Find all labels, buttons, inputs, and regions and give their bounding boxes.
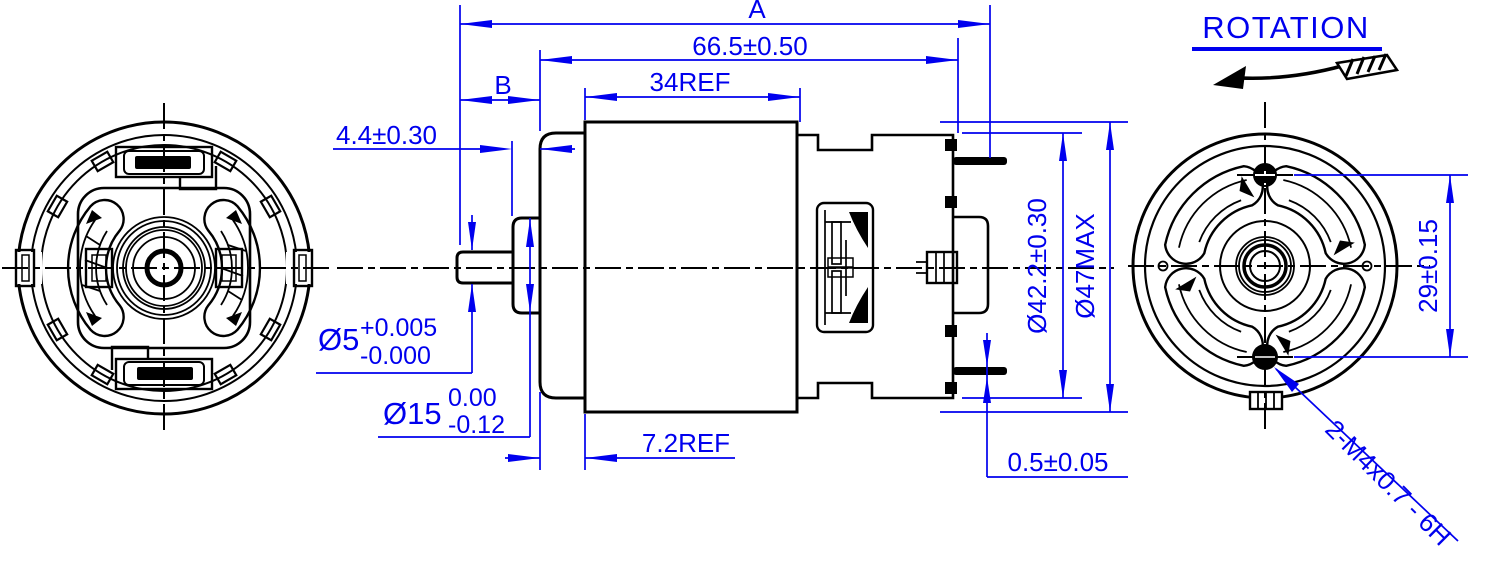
terminal-bottom	[953, 367, 1007, 375]
label-endcap-length: 7.2REF	[642, 428, 730, 458]
motor-engineering-drawing: A 66.5±0.50 B 34REF 4.4±0.30 Ø5 +0.005	[0, 0, 1490, 568]
leader-mounting-thread: 2-M4x0.7 - 6H	[1274, 367, 1458, 551]
label-body-dia: Ø47MAX	[1070, 213, 1100, 319]
label-mounting-thread: 2-M4x0.7 - 6H	[1320, 414, 1458, 552]
label-shaft-extension: B	[494, 70, 511, 100]
dim-hole-spacing: 29±0.15	[1413, 175, 1454, 357]
dim-overall-length-A: A	[460, 0, 990, 28]
label-overall-length: A	[748, 0, 766, 24]
side-view	[337, 122, 1114, 412]
dim-shaft-extension-B: B	[460, 70, 540, 104]
rear-view	[1128, 102, 1430, 430]
dim-case-length: 66.5±0.50	[540, 31, 958, 64]
label-boss-dia-lower: -0.12	[448, 411, 505, 439]
dim-shaft-diameter: Ø5 +0.005 -0.000	[316, 215, 476, 373]
label-endcap-dia: Ø42.2±0.30	[1022, 198, 1052, 334]
label-terminal-thickness: 0.5±0.05	[1007, 447, 1108, 477]
dim-endcap-diameter: Ø42.2±0.30	[1022, 133, 1067, 398]
endcap-outline	[540, 133, 585, 398]
rear-housing-outline	[797, 135, 953, 398]
label-boss-dia-upper: 0.00	[448, 384, 497, 412]
label-shaft-dia-upper: +0.005	[360, 314, 437, 342]
label-boss-height: 4.4±0.30	[336, 120, 437, 150]
front-view	[2, 103, 333, 433]
label-shaft-dia-lower: -0.000	[360, 342, 431, 370]
label-case-length: 66.5±0.50	[692, 31, 807, 61]
dim-body-diameter: Ø47MAX	[1070, 122, 1114, 412]
rotation-label: ROTATION	[1202, 10, 1370, 45]
rear-boss-outline	[953, 217, 988, 313]
terminal-top	[953, 157, 1007, 165]
label-body-length: 34REF	[650, 67, 731, 97]
rotation-note: ROTATION	[1192, 10, 1397, 89]
drawing-canvas: A 66.5±0.50 B 34REF 4.4±0.30 Ø5 +0.005	[0, 0, 1490, 568]
label-hole-spacing: 29±0.15	[1413, 219, 1443, 313]
boss-outline	[513, 218, 540, 313]
dimension-layer: A 66.5±0.50 B 34REF 4.4±0.30 Ø5 +0.005	[316, 0, 1468, 551]
dim-body-length: 34REF	[585, 67, 800, 101]
rotation-arrow-icon	[1213, 54, 1397, 89]
dim-terminal-thickness: 0.5±0.05	[983, 340, 1128, 477]
label-boss-dia-nominal: Ø15	[383, 396, 442, 431]
label-shaft-dia-nominal: Ø5	[318, 322, 359, 357]
